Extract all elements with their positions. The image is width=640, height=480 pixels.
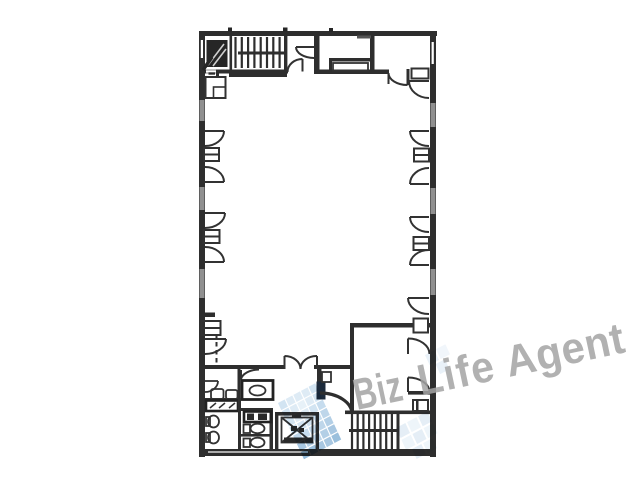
svg-text:Life: Life bbox=[413, 342, 500, 406]
svg-text:Agent: Agent bbox=[501, 314, 629, 387]
svg-text:Biz: Biz bbox=[349, 362, 407, 421]
